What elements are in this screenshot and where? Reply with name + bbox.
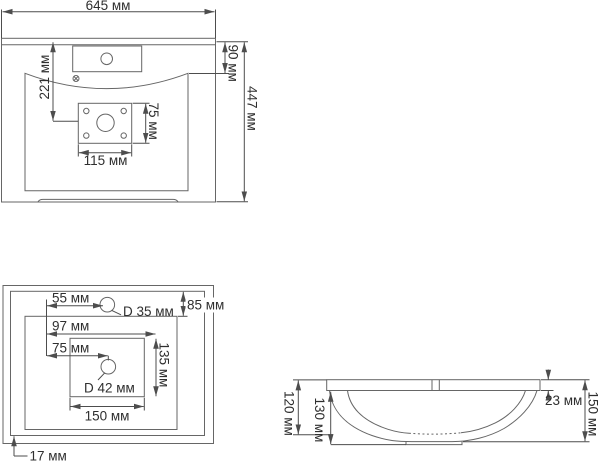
dim-label-rim-depth: 85 мм (187, 298, 224, 313)
bowl-inner-profile-left (348, 391, 410, 434)
plate-hole (121, 108, 126, 113)
drain-hole-top (101, 359, 116, 374)
faucet-hole (101, 53, 113, 65)
dim-label-edge-offset: 17 мм (30, 449, 67, 462)
plate-hole (84, 108, 89, 113)
drain-plate (78, 103, 131, 143)
rim-profile (327, 380, 540, 391)
plate-hole (121, 133, 126, 138)
dim-label-plate-width: 115 мм (84, 153, 128, 168)
dim-label-inner-depth: 120 мм (281, 391, 296, 436)
sink-technical-drawing: 645 мм 90 мм 221 мм 75 мм 115 мм 447 мм … (0, 0, 600, 462)
faucet-hole-top (100, 297, 115, 312)
leader-line (112, 310, 122, 315)
dim-label-drain-diameter: D 42 мм (84, 381, 135, 396)
leader-line (98, 373, 105, 380)
bowl-inner-hidden-line (409, 433, 461, 434)
dim-label-total-width: 645 мм (86, 0, 131, 13)
dim-label-faucet-offset: 55 мм (52, 291, 89, 306)
base-foot (38, 199, 178, 201)
sink-outline (2, 38, 216, 202)
dim-label-plate-height: 75 мм (146, 103, 161, 140)
front-view: 645 мм 90 мм 221 мм 75 мм 115 мм 447 мм (2, 0, 260, 202)
overflow-icon-cross (74, 76, 78, 80)
dim-label-rim-thickness: 23 мм (545, 393, 582, 408)
bowl-inner-profile-right (461, 391, 526, 433)
dim-label-drain-zone-width: 150 мм (85, 409, 130, 424)
plate-hole (84, 133, 89, 138)
dim-label-drain-from-top: 221 мм (37, 55, 52, 100)
dim-label-total-depth: 150 мм (586, 392, 600, 437)
dim-label-drain-offset: 75 мм (52, 341, 89, 356)
faucet-deck (73, 46, 142, 72)
dim-label-drain-zone-offset: 97 мм (52, 319, 89, 334)
drain-hole (97, 114, 114, 131)
dim-label-ledge-height: 90 мм (226, 45, 241, 82)
dim-label-total-height: 447 мм (245, 86, 260, 131)
dim-label-outer-depth: 130 мм (312, 398, 327, 443)
dim-label-drain-zone-depth: 135 мм (156, 343, 171, 388)
side-view: 120 мм 130 мм 23 мм 150 мм (281, 370, 600, 445)
dim-label-faucet-diameter: D 35 мм (123, 304, 174, 319)
top-view: 55 мм D 35 мм 85 мм 97 мм 75 мм 135 мм D… (3, 286, 226, 462)
drawing-svg: 645 мм 90 мм 221 мм 75 мм 115 мм 447 мм … (0, 0, 600, 462)
